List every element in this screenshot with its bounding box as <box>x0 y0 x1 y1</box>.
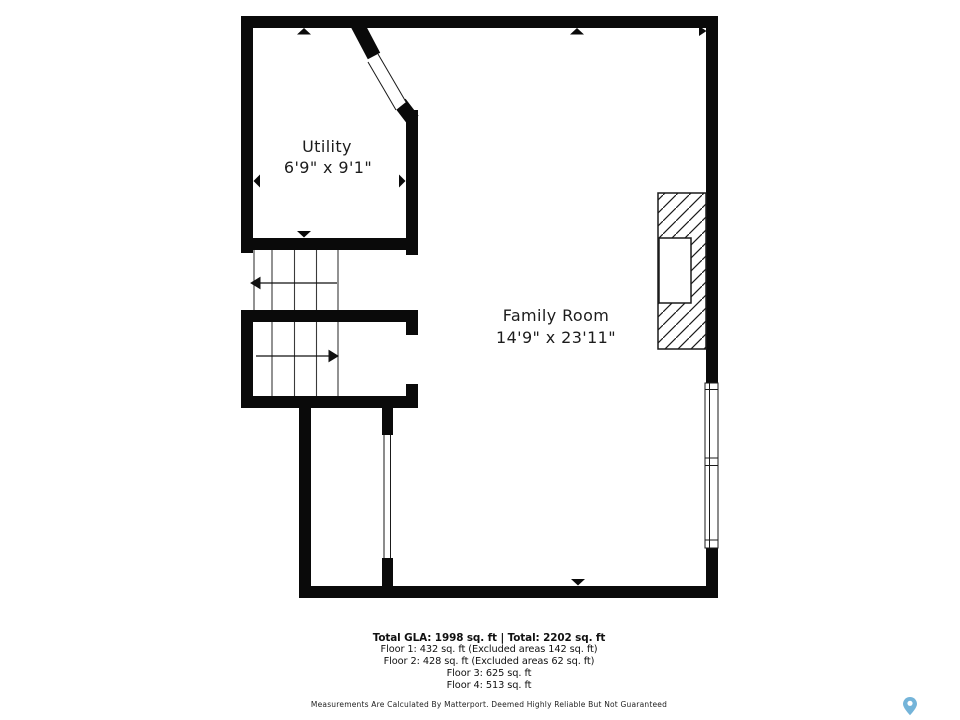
utility-room-label: Utility <box>302 137 352 156</box>
dim-arrow-down-icon <box>571 579 585 586</box>
fireplace <box>658 193 706 349</box>
stairs <box>254 250 338 396</box>
window-right-wall <box>705 383 718 548</box>
wall-segment-diagonal <box>400 103 413 120</box>
wall-segment <box>241 396 418 408</box>
wall-segment <box>241 16 253 253</box>
dim-arrow-up-icon <box>570 28 584 35</box>
wall-segment <box>406 310 418 335</box>
wall-segment <box>382 408 393 435</box>
wall-segment <box>406 110 418 255</box>
family-room-dimensions: 14'9" x 23'11" <box>496 328 616 347</box>
stair-arrow-down-icon <box>256 351 338 362</box>
floor-plan-page: Utility 6'9" x 9'1" Family Room 14'9" x … <box>0 0 960 720</box>
stairs-lower-flight <box>272 322 338 396</box>
floor-plan-drawing: Utility 6'9" x 9'1" Family Room 14'9" x … <box>0 0 960 720</box>
window-divider <box>384 435 391 558</box>
measurement-disclaimer: Measurements Are Calculated By Matterpor… <box>9 700 960 709</box>
floor-3-area-line: Floor 3: 625 sq. ft <box>9 668 960 680</box>
firebox <box>659 238 691 303</box>
matterport-pin-logo <box>902 696 918 716</box>
dimension-arrows <box>254 26 707 586</box>
wall-segment <box>241 238 418 250</box>
dim-arrow-right-icon <box>399 175 406 188</box>
dim-arrow-left-icon <box>254 175 261 188</box>
family-room-label: Family Room <box>503 306 610 325</box>
wall-segment <box>241 16 718 28</box>
floor-2-area-line: Floor 2: 428 sq. ft (Excluded areas 62 s… <box>9 656 960 668</box>
pin-shape <box>903 697 917 715</box>
wall-segment <box>382 558 393 586</box>
dim-arrow-up-icon <box>297 28 311 35</box>
total-gla-line: Total GLA: 1998 sq. ft | Total: 2202 sq.… <box>9 632 960 644</box>
dim-arrow-down-icon <box>297 231 311 238</box>
wall-segment <box>406 384 418 408</box>
pin-hole <box>907 701 912 706</box>
wall-segment <box>299 396 311 598</box>
area-summary: Total GLA: 1998 sq. ft | Total: 2202 sq.… <box>9 632 960 692</box>
wall-segment <box>299 586 718 598</box>
wall-segment <box>241 310 418 322</box>
stairs-upper-flight <box>254 250 338 310</box>
walls <box>241 16 718 598</box>
floor-4-area-line: Floor 4: 513 sq. ft <box>9 680 960 692</box>
floor-1-area-line: Floor 1: 432 sq. ft (Excluded areas 142 … <box>9 644 960 656</box>
window-diagonal <box>368 54 406 110</box>
utility-room-dimensions: 6'9" x 9'1" <box>284 158 372 177</box>
wall-segment <box>241 310 253 408</box>
